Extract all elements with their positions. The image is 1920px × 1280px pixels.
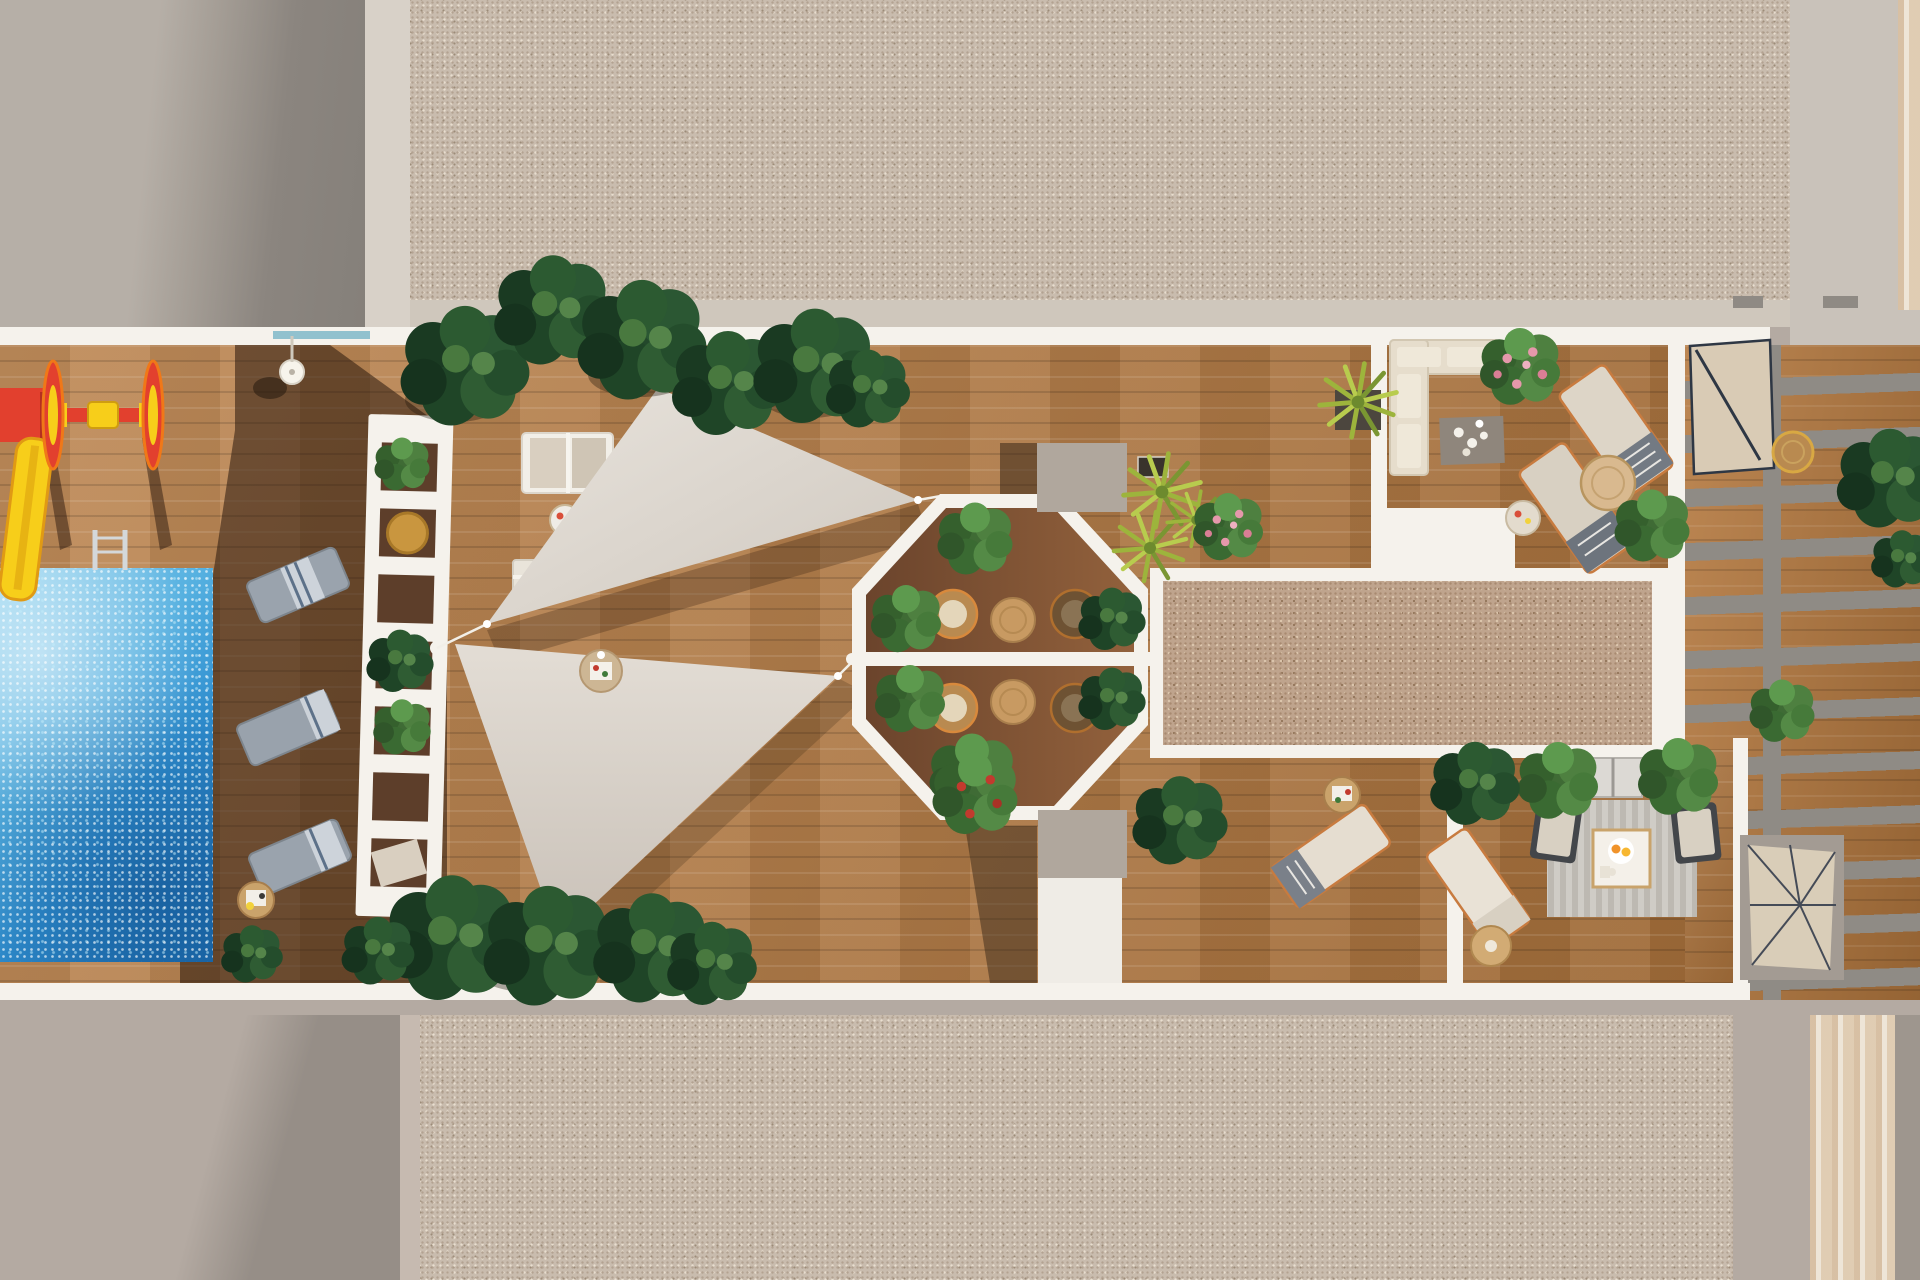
cantilever-parasol <box>1690 340 1774 474</box>
spiral-stairs <box>1740 835 1844 980</box>
pavilion-box-top <box>1037 443 1127 512</box>
bistro-set-upper <box>929 590 1099 642</box>
parasol-table <box>580 650 622 692</box>
round-table <box>1773 432 1813 472</box>
terrace-aerial-render <box>0 0 1920 1280</box>
scene-detail-overlay <box>0 0 1920 1280</box>
children-playground <box>0 361 172 602</box>
outdoor-lounge-corner <box>1320 328 1560 475</box>
white-walkway <box>1038 878 1122 983</box>
bistro-set-lower <box>929 680 1099 732</box>
pavilion-box-bottom <box>1038 810 1127 878</box>
grass-planters <box>1114 454 1263 581</box>
pool-ladder <box>95 530 125 570</box>
